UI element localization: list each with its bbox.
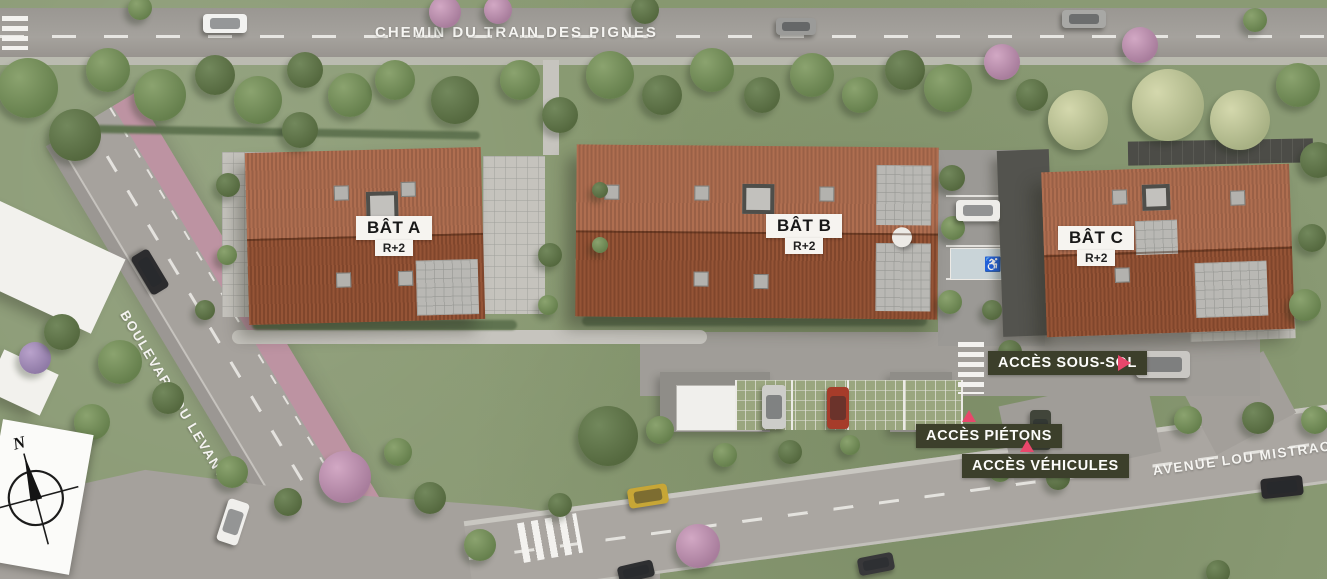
tree <box>676 524 720 568</box>
tree <box>778 440 802 464</box>
tree <box>1122 27 1158 63</box>
tree <box>375 60 415 100</box>
skylight <box>1230 190 1246 206</box>
roof-terrace <box>1194 261 1268 318</box>
roof-terrace <box>875 243 931 311</box>
tree <box>642 75 682 115</box>
building-b-label: BÂT B R+2 <box>766 214 842 254</box>
skylight <box>754 274 769 289</box>
car <box>762 385 786 429</box>
building-c-label: BÂT C R+2 <box>1058 226 1134 266</box>
crosswalk <box>958 342 984 394</box>
car <box>1260 475 1304 499</box>
chimney <box>742 184 774 214</box>
skylight <box>1115 267 1131 283</box>
tree <box>1132 69 1204 141</box>
tree <box>1242 402 1274 434</box>
tree <box>500 60 540 100</box>
tree <box>646 416 674 444</box>
tree <box>1174 406 1202 434</box>
tree <box>384 438 412 466</box>
tree <box>98 340 142 384</box>
tree <box>86 48 130 92</box>
car <box>827 387 849 429</box>
tree <box>1300 142 1327 178</box>
skylight <box>401 182 416 197</box>
tree <box>842 77 878 113</box>
tree <box>690 48 734 92</box>
tree <box>586 51 634 99</box>
tree <box>592 182 608 198</box>
tree <box>840 435 860 455</box>
tree <box>134 69 186 121</box>
access-arrow-icon <box>1020 440 1034 452</box>
tree <box>538 243 562 267</box>
tree <box>538 295 558 315</box>
tree <box>790 53 834 97</box>
skylight <box>336 272 351 287</box>
skylight <box>1112 189 1128 205</box>
tree <box>431 76 479 124</box>
tree <box>885 50 925 90</box>
access-pietons-label: ACCÈS PIÉTONS <box>916 424 1062 448</box>
tree <box>216 456 248 488</box>
tree <box>217 245 237 265</box>
roof-terrace <box>1135 220 1178 255</box>
skylight <box>819 187 834 202</box>
access-vehicules-label: ACCÈS VÉHICULES <box>962 454 1129 478</box>
tree <box>1210 90 1270 150</box>
chimney <box>1142 184 1171 211</box>
tree <box>282 112 318 148</box>
tree <box>1048 90 1108 150</box>
umbrella <box>892 227 912 247</box>
tree <box>924 64 972 112</box>
tree <box>984 44 1020 80</box>
tree <box>414 482 446 514</box>
tree <box>592 237 608 253</box>
tree <box>548 493 572 517</box>
tree <box>542 97 578 133</box>
building-a-label: BÂT A R+2 <box>356 216 432 256</box>
skylight <box>694 271 709 286</box>
car <box>203 14 247 33</box>
tree <box>44 314 80 350</box>
tree <box>1301 406 1327 434</box>
tree <box>1243 8 1267 32</box>
tree <box>19 342 51 374</box>
tree <box>1016 79 1048 111</box>
tree <box>274 488 302 516</box>
tree <box>319 451 371 503</box>
tree <box>234 76 282 124</box>
tree <box>744 77 780 113</box>
skylight <box>334 185 349 200</box>
compass-north-letter: N <box>10 432 28 454</box>
tree <box>49 109 101 161</box>
site-plan: ♿ <box>0 0 1327 579</box>
skylight <box>694 185 709 200</box>
tree <box>1298 224 1326 252</box>
access-arrow-icon <box>962 410 976 422</box>
tree <box>216 173 240 197</box>
skylight <box>398 271 413 286</box>
car <box>1062 10 1106 28</box>
tree <box>1276 63 1320 107</box>
roof-terrace <box>416 259 479 316</box>
tree <box>464 529 496 561</box>
access-arrow-icon <box>1118 355 1131 371</box>
street-label-chemin: CHEMIN DU TRAIN DES PIGNES <box>375 24 658 41</box>
tree <box>287 52 323 88</box>
tree <box>1289 289 1321 321</box>
tree <box>938 290 962 314</box>
car <box>956 200 1000 221</box>
tree <box>982 300 1002 320</box>
footpath <box>232 330 707 344</box>
tree <box>195 55 235 95</box>
tree <box>0 58 58 118</box>
tree <box>1206 560 1230 579</box>
tree <box>578 406 638 466</box>
tree <box>713 443 737 467</box>
tree <box>939 165 965 191</box>
crosswalk <box>2 16 28 50</box>
terrace <box>483 156 545 314</box>
building-b-roof <box>575 144 938 319</box>
tree <box>152 382 184 414</box>
tree <box>195 300 215 320</box>
car <box>776 18 816 35</box>
tree <box>328 73 372 117</box>
car <box>857 552 896 577</box>
roof-terrace <box>876 165 932 225</box>
